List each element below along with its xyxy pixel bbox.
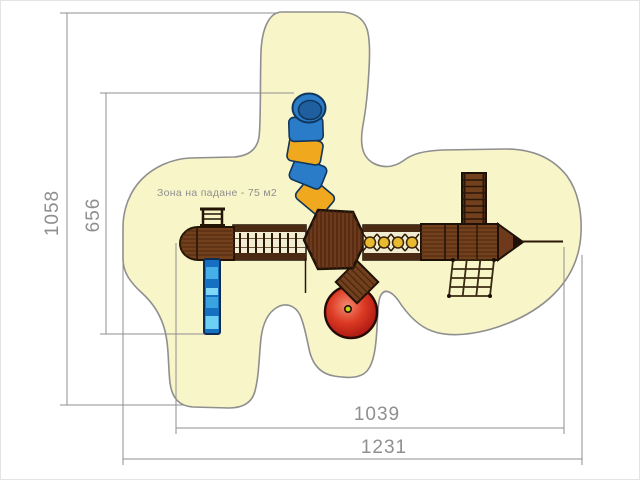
hexagon-platform (304, 209, 366, 271)
dim-label-site-height: 1058 (42, 190, 64, 236)
blue-slide (204, 259, 220, 334)
fall-zone-outline (123, 12, 581, 408)
climbing-ramp (462, 173, 486, 225)
dim-label-site-width: 1231 (361, 437, 407, 459)
playground-plan-figure (1, 1, 640, 480)
ramp-hub (345, 306, 351, 312)
dim-label-structure-width: 1039 (354, 404, 400, 426)
technical-drawing-page: Зона на падане - 75 м2 1058 656 1039 123… (0, 0, 640, 480)
fall-zone-label: Зона на падане - 75 м2 (157, 187, 277, 199)
left-tower-platform (179, 227, 234, 260)
bridge-walkway (233, 225, 306, 260)
dim-label-structure-height: 656 (83, 198, 105, 233)
net-tunnel-walkway (363, 225, 421, 260)
